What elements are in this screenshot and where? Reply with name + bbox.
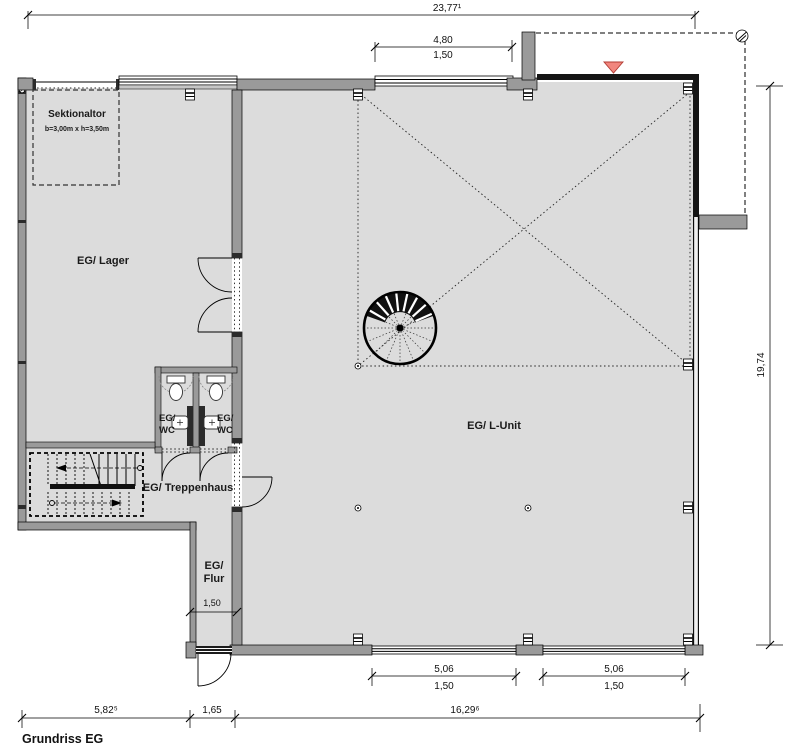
wc-top-wall [155,367,237,373]
lager-treppenhaus-wall [26,442,155,448]
bottom-wall-left [230,645,372,655]
dim-bottom-chain: 5,82⁵ 1,65 16,29⁶ [18,704,704,732]
bottom-window-2 [543,646,685,654]
l-unit-label: EG/ L-Unit [467,420,521,432]
dim-top-window-label: 4,80 [433,35,453,46]
bottom-wall-right [685,645,703,655]
wc-left-label-line2: WC [159,425,175,436]
treppenhaus-label: EG/ Treppenhaus [143,482,233,494]
floor-plan-page: 23,77¹ 4,80 1,50 19,74 1,50 [0,0,785,752]
right-wall-stub [699,215,747,229]
dim-seg-left-label: 5,82⁵ [94,705,118,716]
sektionaltor-size-label: b=3,00m x h=3,50m [45,126,109,133]
floor-plan-canvas: 23,77¹ 4,80 1,50 19,74 1,50 [0,0,785,752]
central-wall-lower [232,507,242,645]
entrance-step [186,642,196,658]
dim-top-window: 4,80 1,50 [371,35,516,62]
dim-bwin2-label: 5,06 [604,664,624,675]
top-window-lunit [375,76,513,86]
wc-right-label-line2: WC [217,425,233,436]
canopy-column [736,30,748,42]
wc-left-label-line1: EG/ [159,413,176,424]
top-glazing [537,74,694,80]
wc-left-wall [155,367,161,450]
dim-seg-mid-label: 1,65 [202,705,222,716]
top-wall-mid [237,79,375,90]
dim-bwin2-sub: 1,50 [604,681,624,692]
dim-total-width: 23,77¹ [24,3,699,29]
wc-divider-wall [193,373,199,450]
dim-bottom-window-2: 5,06 1,50 [539,664,689,692]
flur-left-wall [190,522,196,647]
left-exterior-wall [18,78,26,530]
bottom-wall-pier [516,645,543,655]
central-wall-upper [232,90,242,258]
flur-label-line1: EG/ [205,560,224,572]
dim-top-window-sub: 1,50 [433,50,453,61]
wc-right-label-line1: EG/ [217,413,234,424]
stair-rail [50,484,135,489]
dim-bwin1-sub: 1,50 [434,681,454,692]
dim-right-height-label: 19,74 [756,352,767,377]
right-facade-dark [693,74,699,217]
dim-total-width-label: 23,77¹ [433,3,462,14]
spiral-hub [397,325,404,332]
lager-label: EG/ Lager [77,255,130,267]
entrance-marker-icon [604,62,623,73]
treppenhaus-bottom-wall [18,522,196,530]
dim-flur-width-label: 1,50 [203,598,221,608]
l-unit-floor [242,82,693,648]
central-wall-mid [232,332,242,443]
top-wall-stub [522,32,535,80]
lager-floor [26,88,232,448]
bottom-window-1 [372,646,516,654]
dim-seg-right-label: 16,29⁶ [450,705,479,716]
page-title: Grundriss EG [22,732,103,746]
dim-right-height: 19,74 [756,82,783,649]
sektionaltor-label: Sektionaltor [48,109,106,120]
top-window-lager [119,76,237,89]
dim-bottom-window-1: 5,06 1,50 [368,664,520,692]
entrance-door [196,646,232,686]
dim-bwin1-label: 5,06 [434,664,454,675]
spiral-stair [364,292,436,364]
top-wall-corner [18,78,33,90]
flur-label-line2: Flur [204,573,225,585]
